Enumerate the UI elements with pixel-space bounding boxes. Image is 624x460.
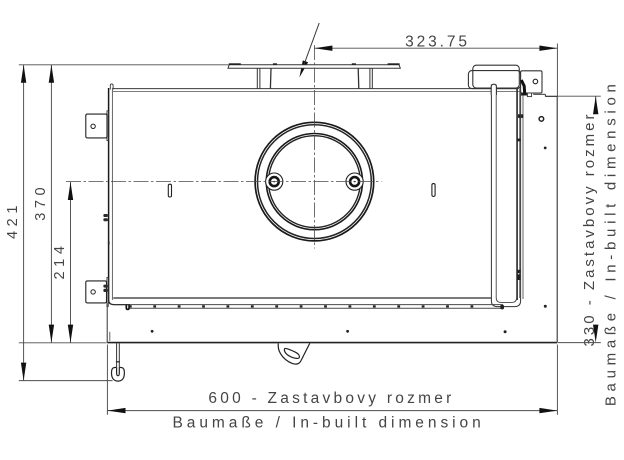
svg-text:370: 370 [33,183,49,221]
svg-text:421: 421 [5,201,21,239]
svg-text:323.75: 323.75 [405,34,470,51]
svg-text:330 - Zastavbovy rozmer: 330 - Zastavbovy rozmer [581,112,598,347]
svg-text:600 - Zastavbovy rozmer: 600 - Zastavbovy rozmer [208,390,454,407]
svg-text:Baumaße / In-built dimension: Baumaße / In-built dimension [602,79,619,406]
svg-text:Baumaße / In-built dimension: Baumaße / In-built dimension [172,415,484,432]
svg-text:214: 214 [52,242,68,280]
